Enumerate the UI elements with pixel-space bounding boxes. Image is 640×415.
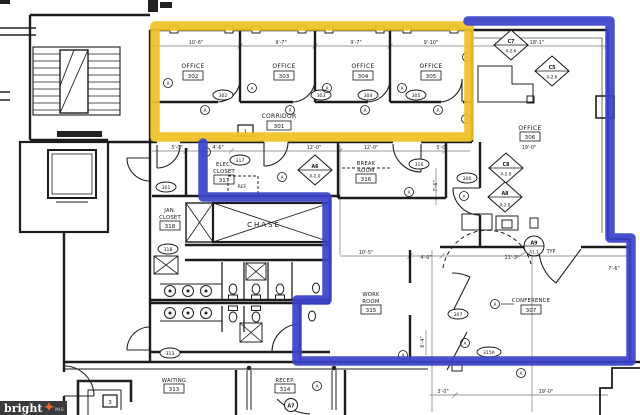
door-tag: 317 [236, 158, 245, 164]
svg-text:A7: A7 [287, 404, 294, 410]
room-elec-closet-317: ELEC.CLOSET317 [213, 162, 235, 184]
dim: 19'-0" [539, 389, 553, 395]
circle-a-icon: A [460, 192, 469, 201]
room-office-305: OFFICE305 [419, 63, 442, 80]
room-corridor-301: CORRIDOR301 [262, 113, 297, 130]
stairwell [30, 15, 150, 140]
svg-text:A: A [251, 86, 254, 91]
door-tag: 313 [166, 351, 175, 357]
door-tag: 305 [412, 93, 421, 99]
dim: 7'-6" [608, 266, 619, 272]
svg-text:A: A [316, 384, 319, 389]
svg-text:313: 313 [169, 387, 180, 393]
svg-text:A8: A8 [501, 191, 509, 197]
svg-text:A: A [204, 108, 207, 113]
door-tag: 316 [415, 162, 424, 168]
svg-text:303: 303 [279, 74, 290, 80]
svg-text:A: A [408, 190, 411, 195]
circle-a-icon: A [491, 300, 515, 309]
dim: 7'-6" [433, 180, 439, 191]
svg-text:RECEP.: RECEP. [275, 378, 294, 384]
circle-a-icon: A [361, 106, 370, 115]
floorplan-screenshot: OFFICE302 OFFICE303 OFFICE304 OFFICE305 … [0, 0, 640, 415]
elevator [20, 142, 108, 232]
svg-text:C5: C5 [549, 65, 556, 71]
svg-text:305: 305 [426, 74, 437, 80]
svg-text:307: 307 [526, 308, 537, 314]
circle-a-icon: A [517, 369, 526, 378]
svg-text:C7: C7 [508, 39, 515, 45]
svg-text:304: 304 [358, 74, 369, 80]
svg-text:CHASE: CHASE [247, 221, 281, 229]
room-office-302: OFFICE302 [181, 63, 204, 80]
room-chase: CHASE [247, 221, 281, 229]
dim: 9'-10" [424, 40, 438, 46]
room-office-303: OFFICE303 [272, 63, 295, 80]
circle-a-icon: A [278, 173, 287, 182]
svg-text:CLOSET: CLOSET [159, 215, 181, 221]
room-conference-307: CONFERENCE307 [512, 298, 551, 314]
detail-marker-c8: C8A-2.0 [489, 153, 523, 183]
door-tag: 303 [317, 93, 326, 99]
circle-a-icon: A [398, 84, 407, 93]
door-tag: 304 [364, 93, 373, 99]
dim: 10'-6" [189, 40, 203, 46]
svg-text:302: 302 [188, 74, 199, 80]
door-tag: 306 [463, 176, 472, 182]
svg-text:A: A [520, 371, 523, 376]
svg-text:A-2.6: A-2.6 [547, 75, 558, 80]
svg-text:WORK: WORK [362, 292, 380, 298]
circle-a-icon: A [461, 339, 470, 348]
svg-text:OFFICE: OFFICE [518, 125, 541, 132]
circle-a-icon: A [164, 79, 173, 88]
room-office-304: OFFICE304 [351, 63, 374, 80]
door-tag: 301 [162, 185, 171, 191]
svg-text:JAN.: JAN. [163, 208, 176, 214]
dim: 5'-0" [436, 145, 447, 151]
circle-a-icon: A [201, 106, 210, 115]
svg-text:A: A [281, 175, 284, 180]
svg-text:A: A [289, 108, 292, 113]
detail-marker-a7: A7 [285, 399, 298, 412]
svg-text:A: A [463, 194, 466, 199]
dim: 12'-0" [307, 145, 321, 151]
svg-text:315: 315 [366, 308, 377, 314]
detail-marker-a8: A8A-2.0 [488, 182, 522, 212]
dim: 3'-0" [437, 389, 448, 395]
door-tag: 318 [164, 247, 173, 253]
svg-text:314: 314 [280, 387, 291, 393]
svg-text:A: A [494, 302, 497, 307]
svg-text:C8: C8 [503, 162, 511, 168]
dim: 5'-0" [171, 145, 182, 151]
svg-text:A-2.0: A-2.0 [500, 203, 511, 208]
dim: 12'-0" [364, 145, 378, 151]
svg-text:A-2.0: A-2.0 [501, 172, 512, 177]
detail-marker-a6: A6A-2.0 [298, 155, 332, 185]
dim: 9'-7" [350, 40, 361, 46]
circle-a-icon: A [313, 382, 322, 391]
dim: 6'-4" [420, 336, 426, 347]
door-tag: 307 [454, 312, 463, 318]
svg-text:BREAK: BREAK [357, 161, 376, 167]
detail-marker-c5: C5A-2.6 [535, 56, 569, 86]
svg-text:A: A [167, 81, 170, 86]
dim: 9'-7" [275, 40, 286, 46]
svg-text:301: 301 [274, 124, 285, 130]
svg-text:A: A [401, 86, 404, 91]
keynote-3: 3 [108, 400, 112, 406]
svg-text:ROOM: ROOM [357, 168, 375, 174]
room-office-306: OFFICE306 [518, 125, 541, 141]
svg-text:A6: A6 [311, 164, 319, 170]
room-jan-closet-318: JAN.CLOSET318 [159, 208, 181, 230]
ref-label: REF [238, 184, 247, 190]
circle-a-icon: A [434, 106, 443, 115]
dim: 18'-1" [530, 40, 544, 46]
door-tag: 315A [483, 350, 496, 356]
svg-text:OFFICE: OFFICE [272, 63, 295, 70]
svg-text:318: 318 [165, 224, 176, 230]
svg-text:A-2.6: A-2.6 [506, 49, 517, 54]
room-waiting-313: WAITING313 [162, 378, 186, 393]
svg-text:OFFICE: OFFICE [181, 63, 204, 70]
detail-marker-c7: C7A-2.6 [494, 30, 528, 60]
svg-text:CONFERENCE: CONFERENCE [512, 298, 551, 304]
dim: 21'-3" [505, 255, 519, 261]
dim: 4'-6" [212, 145, 223, 151]
dim: 4'-0" [420, 255, 431, 261]
circle-a-icon: A [405, 188, 414, 197]
svg-text:A: A [364, 108, 367, 113]
typ-label: TYP [546, 249, 556, 255]
svg-text:OFFICE: OFFICE [351, 63, 374, 70]
svg-text:ELEC.: ELEC. [216, 162, 232, 168]
svg-text:A-2.0: A-2.0 [310, 174, 321, 179]
svg-text:A: A [326, 86, 329, 91]
svg-text:ROOM: ROOM [362, 299, 380, 305]
svg-text:306: 306 [525, 135, 536, 141]
watermark-suffix: MLS [55, 407, 64, 412]
room-break-room-316: BREAKROOM316 [356, 161, 376, 183]
svg-text:OFFICE: OFFICE [419, 63, 442, 70]
dim: 19'-0" [522, 145, 536, 151]
svg-text:CLOSET: CLOSET [213, 169, 235, 175]
svg-text:WAITING: WAITING [162, 378, 186, 384]
door-tag: 302 [219, 93, 228, 99]
dimension-text: 10'-6" 9'-7" 9'-7" 9'-10" 18'-1" 5'-0" 4… [171, 40, 619, 395]
circle-a-icon: A [248, 84, 257, 93]
svg-text:317: 317 [219, 178, 230, 184]
watermark-brand: bright [4, 402, 43, 415]
dim: 10'-5" [359, 250, 373, 256]
watermark: bright MLS [0, 401, 67, 415]
svg-text:A: A [464, 341, 467, 346]
svg-text:A: A [437, 108, 440, 113]
room-work-room-315: WORKROOM315 [361, 292, 381, 314]
svg-text:A1.1: A1.1 [529, 250, 539, 255]
svg-text:A9: A9 [530, 241, 538, 247]
room-recep-314: RECEP.314 [275, 378, 295, 393]
svg-text:316: 316 [361, 177, 372, 183]
